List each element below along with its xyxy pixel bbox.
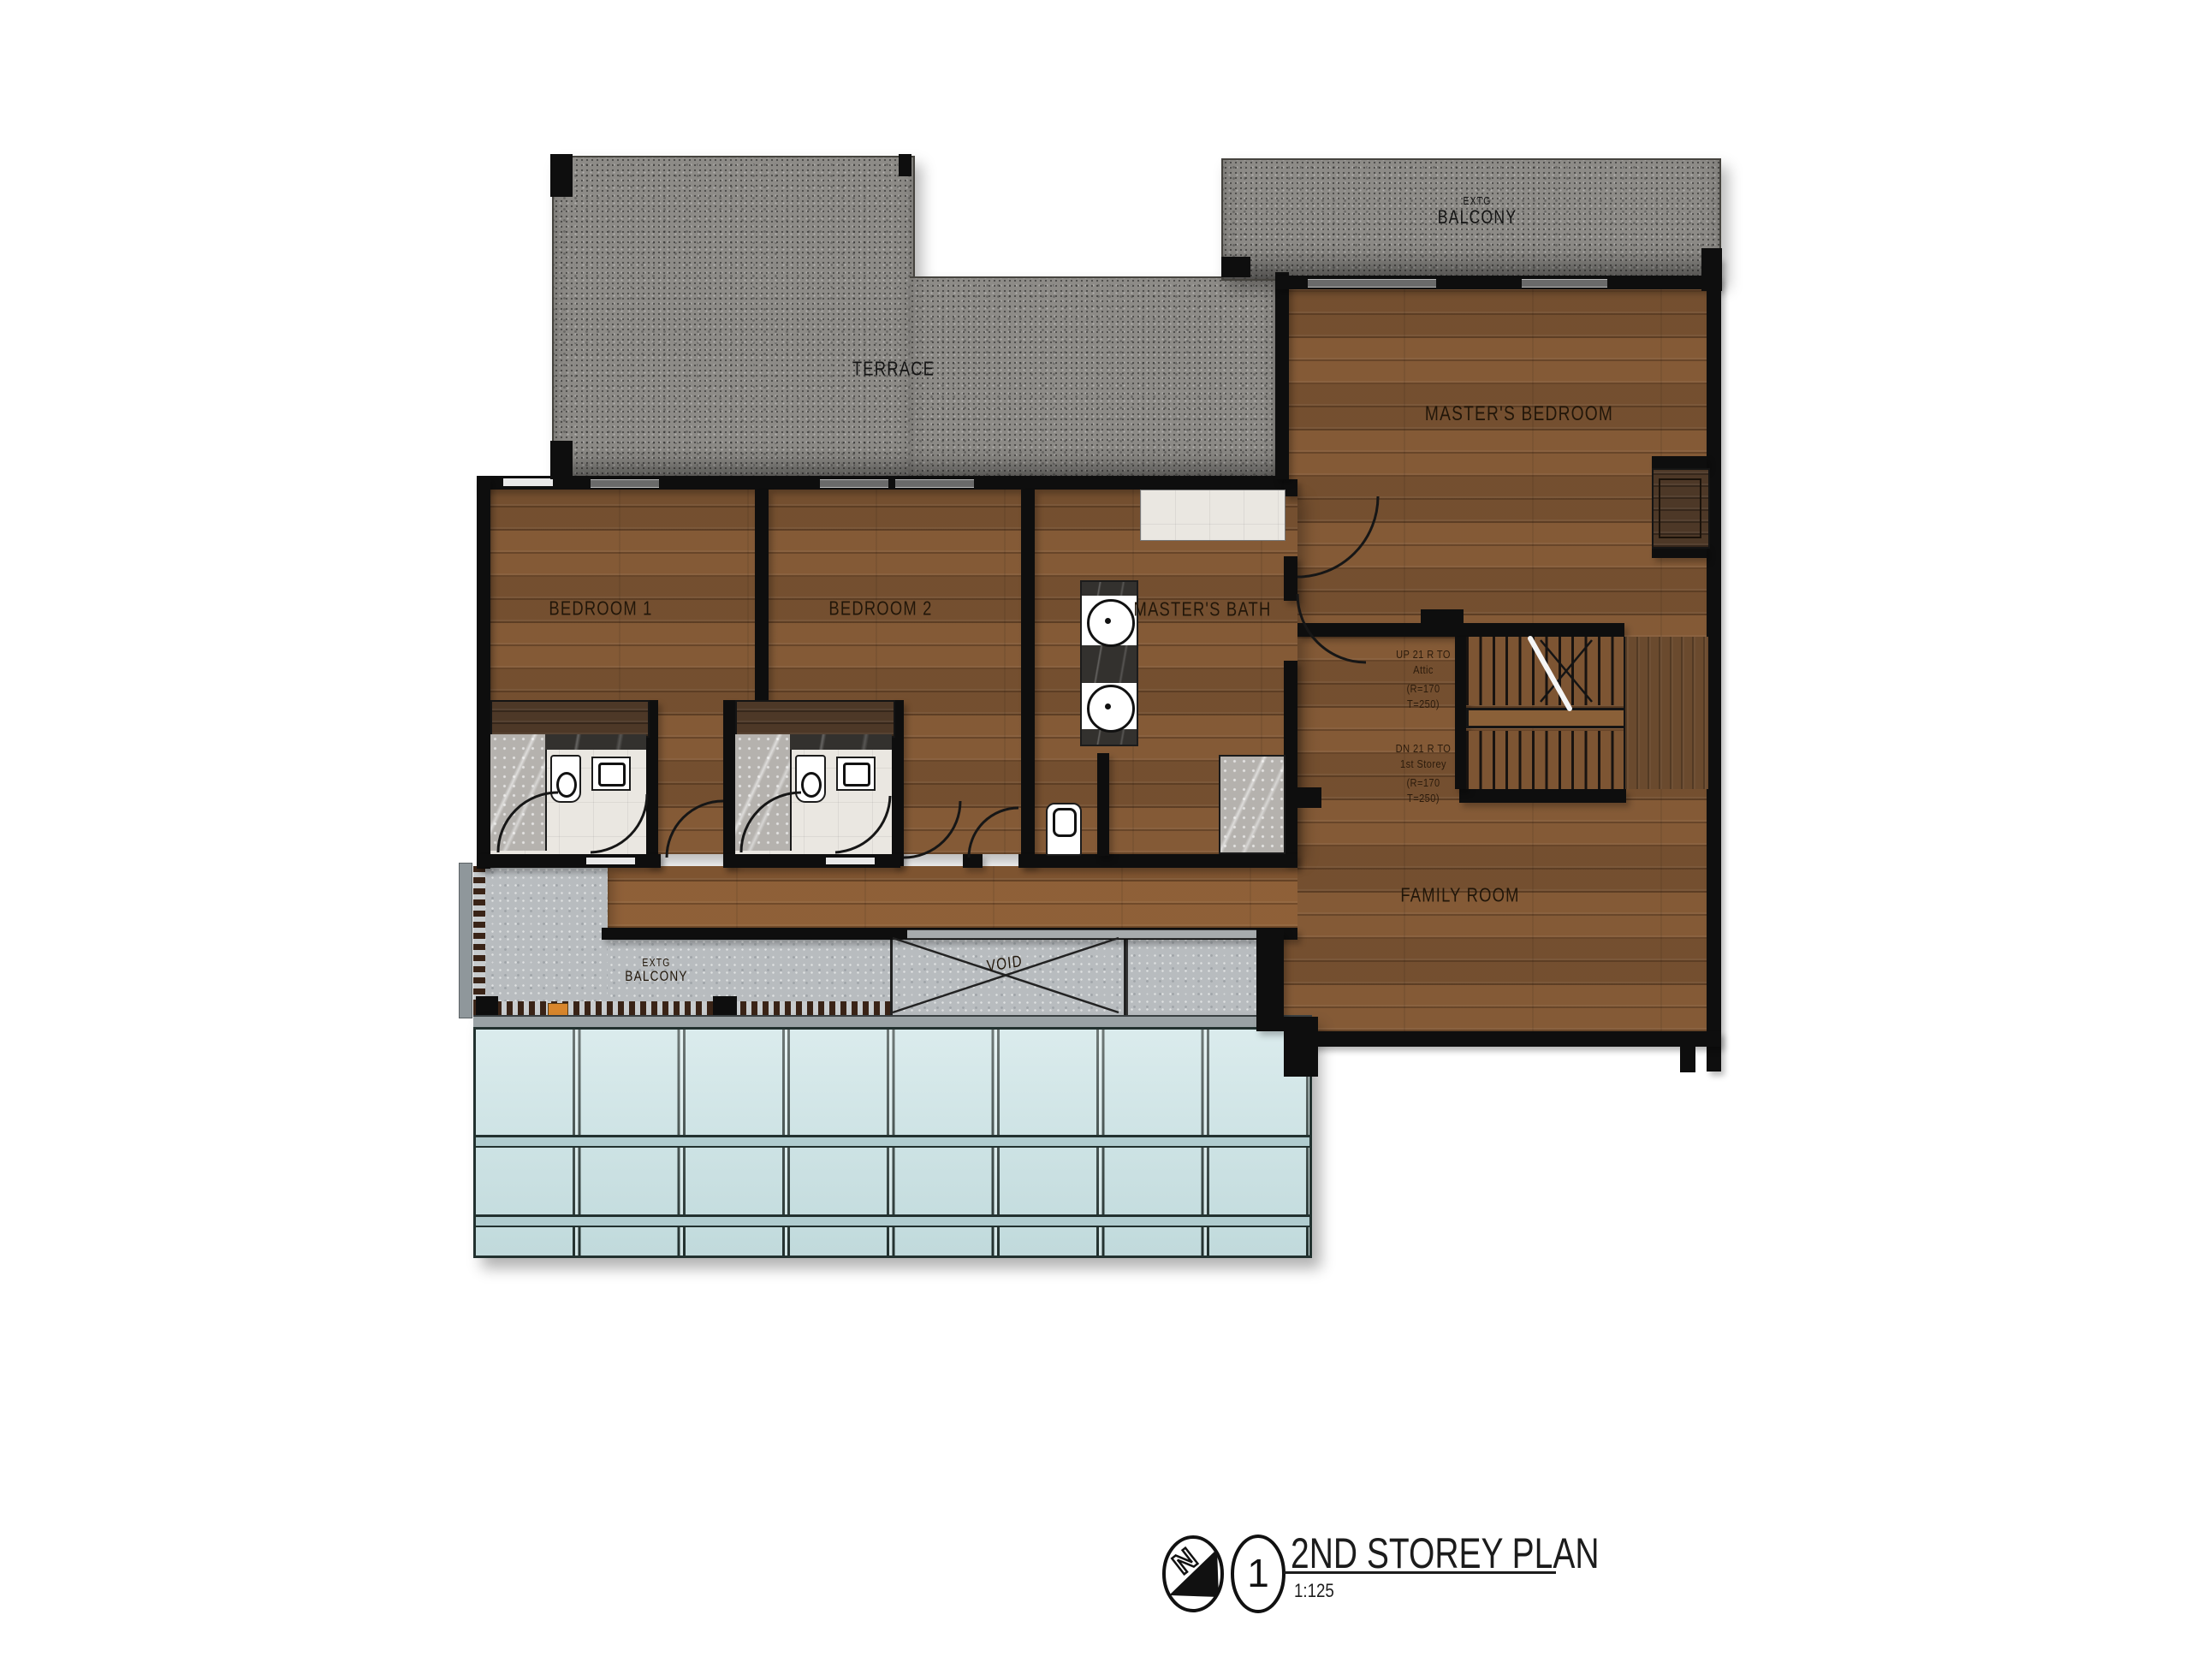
terrace-label: TERRACE	[852, 358, 935, 381]
bedroom1-label: BEDROOM 1	[549, 597, 652, 620]
stair-note-down: DN 21 R TO 1st Storey (R=170 T=250)	[1373, 741, 1475, 806]
plan-scale: 1:125	[1294, 1580, 1334, 1602]
door-arc-bath1-entry	[591, 794, 647, 852]
balcony-bottom-label-line2: BALCONY	[625, 969, 687, 984]
plan-title-underline	[1284, 1571, 1556, 1574]
door-arc-masterbath-top	[1297, 496, 1378, 577]
balcony-top-label: EXTG BALCONY	[1438, 195, 1517, 228]
title-emblems: N 1	[1157, 1532, 1294, 1616]
door-arc-wc	[969, 808, 1018, 858]
balcony-top-label-line1: EXTG	[1438, 195, 1517, 207]
floor-plan-canvas: TERRACE EXTG BALCONY MASTER'S BEDROOM BE…	[0, 0, 2191, 1680]
door-arc-bath2-shower	[741, 793, 801, 852]
stair-note-up-l3: (R=170	[1406, 682, 1440, 695]
void-cross	[893, 938, 1119, 1012]
sheet-number: 1	[1247, 1551, 1269, 1595]
stair-note-down-l3: (R=170	[1406, 776, 1440, 789]
stair-note-up-l2: Attic	[1413, 663, 1434, 676]
balcony-bottom-label: EXTG BALCONY	[625, 957, 687, 984]
balcony-bottom-label-line1: EXTG	[625, 957, 687, 969]
master-bedroom-label: MASTER'S BEDROOM	[1425, 402, 1613, 426]
stair-note-down-l4: T=250)	[1407, 792, 1440, 804]
door-arc-bedroom2	[904, 801, 960, 858]
stair-note-down-l1: DN 21 R TO	[1396, 742, 1452, 755]
master-bath-label: MASTER'S BATH	[1134, 598, 1272, 621]
family-room-label: FAMILY ROOM	[1400, 884, 1519, 907]
stair-note-up: UP 21 R TO Attic (R=170 T=250)	[1373, 647, 1475, 712]
door-arc-masterbath-mid	[1297, 594, 1366, 662]
stair-note-down-l2: 1st Storey	[1400, 757, 1446, 770]
door-arc-bedroom1	[667, 801, 723, 858]
door-arcs	[498, 496, 1378, 858]
balcony-top-label-line2: BALCONY	[1438, 207, 1517, 228]
stair-note-up-l4: T=250)	[1407, 698, 1440, 710]
annotation-overlay	[0, 0, 2191, 1680]
bedroom2-label: BEDROOM 2	[828, 597, 932, 620]
door-arc-bath1-shower	[498, 793, 558, 852]
stair-note-up-l1: UP 21 R TO	[1396, 648, 1451, 661]
door-arc-bath2-entry	[835, 796, 890, 852]
